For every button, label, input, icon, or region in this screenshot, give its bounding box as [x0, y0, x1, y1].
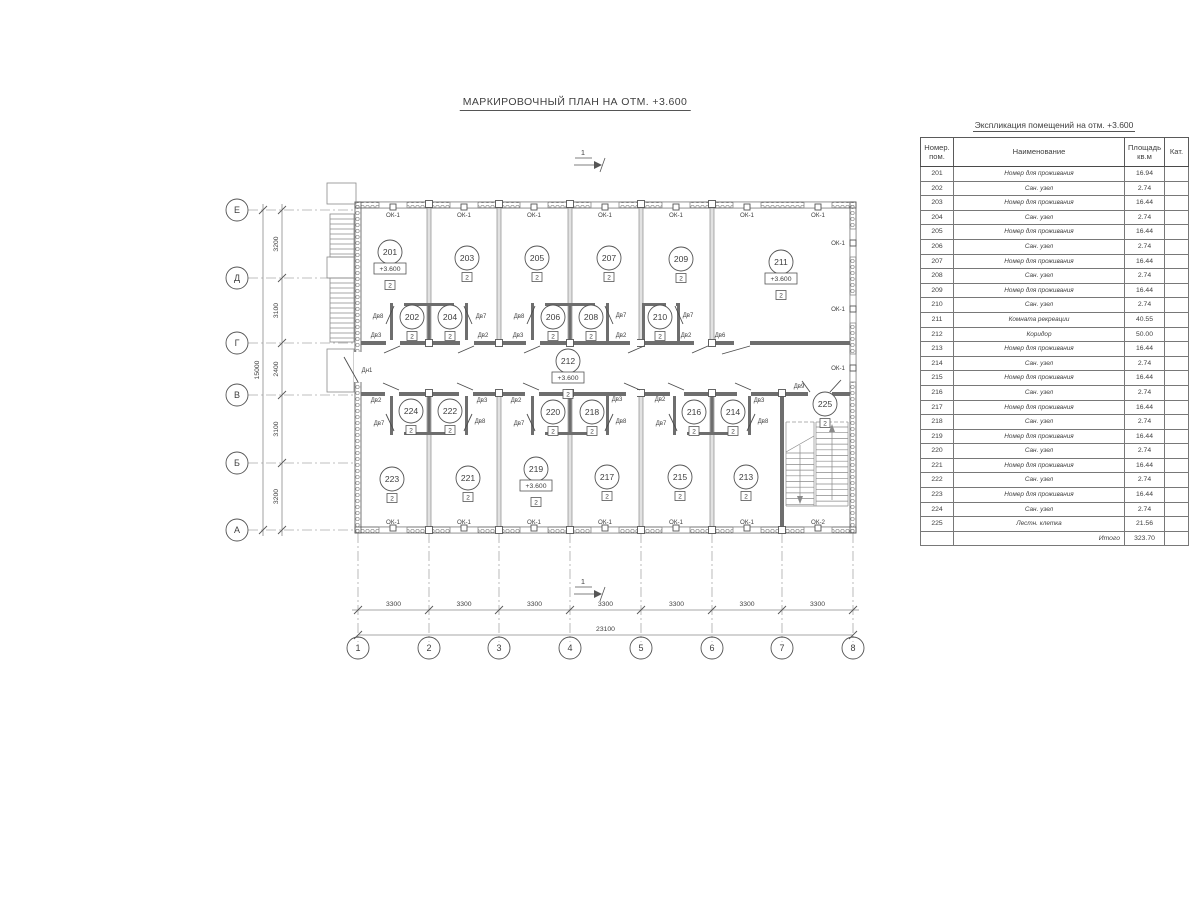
area-cell: 2.74: [1125, 444, 1165, 459]
external-stair: [327, 183, 356, 392]
category-mark: 2: [590, 429, 594, 436]
area-cell: 16.44: [1125, 400, 1165, 415]
stair-landing: [327, 257, 354, 278]
bathroom-wall: [531, 396, 534, 435]
category-cell: [1165, 342, 1189, 357]
window-frame-mark: [850, 365, 856, 371]
room-number-cell: 209: [921, 283, 954, 298]
pilaster-mark: [709, 527, 716, 534]
room-number: 204: [443, 312, 458, 322]
room-name-cell: Номер для проживания: [954, 225, 1125, 240]
axis-bubble-label: 8: [850, 643, 855, 653]
dim-label: 3300: [739, 601, 754, 608]
window-label: ОК-1: [598, 519, 612, 526]
table-row: 211Комната рекреации40.55: [921, 312, 1189, 327]
room-name-cell: Номер для проживания: [954, 196, 1125, 211]
door-label: Дв2: [655, 397, 666, 403]
door-opening: [734, 340, 750, 346]
corridor-wall-top: [361, 341, 850, 345]
pilaster-mark: [426, 340, 433, 347]
table-row: 223Номер для проживания16.44: [921, 488, 1189, 503]
axis-bubble-label: 5: [638, 643, 643, 653]
area-cell: 16.44: [1125, 254, 1165, 269]
room-number: 222: [443, 406, 458, 416]
table-row: 206Сан. узел2.74: [921, 239, 1189, 254]
dim-label: 3100: [273, 421, 280, 436]
table-row: 214Сан. узел2.74: [921, 356, 1189, 371]
stairwell-stairs: [786, 422, 848, 506]
category-cell: [1165, 196, 1189, 211]
area-cell: 2.74: [1125, 473, 1165, 488]
axis-bubble-label: В: [234, 390, 240, 400]
category-mark: 2: [535, 275, 539, 282]
category-cell: [1165, 385, 1189, 400]
dim-total-label: 15000: [254, 360, 261, 379]
stair-down-arrowhead: [797, 496, 803, 504]
category-cell: [1165, 283, 1189, 298]
room-number: 223: [385, 474, 400, 484]
door-opening: [666, 302, 676, 307]
category-cell: [1165, 356, 1189, 371]
door-opening: [454, 431, 465, 436]
room-name-cell: Сан. узел: [954, 502, 1125, 517]
category-mark: 2: [410, 334, 414, 341]
room-name-cell: Номер для проживания: [954, 283, 1125, 298]
table-row: 221Номер для проживания16.44: [921, 458, 1189, 473]
section-mark-top: 1: [574, 148, 605, 172]
table-header: Номер. пом.НаименованиеПлощадь кв.мКат.: [921, 138, 1189, 167]
category-cell: [1165, 415, 1189, 430]
bathroom-wall: [748, 396, 751, 435]
door-leaf: [624, 383, 640, 390]
bathroom-wall: [642, 303, 645, 342]
door-opening: [626, 390, 640, 396]
category-cell: [1165, 210, 1189, 225]
category-mark: 2: [551, 334, 555, 341]
category-cell: [1165, 298, 1189, 313]
room-name-cell: Сан. узел: [954, 269, 1125, 284]
room-number-cell: 221: [921, 458, 954, 473]
room-number-cell: 204: [921, 210, 954, 225]
area-cell: 2.74: [1125, 356, 1165, 371]
dim-label: 3300: [527, 601, 542, 608]
category-cell: [1165, 167, 1189, 182]
dim-label: 3100: [273, 303, 280, 318]
table-row: 202Сан. узел2.74: [921, 181, 1189, 196]
table-title: Экспликация помещений на отм. +3.600: [920, 120, 1188, 130]
category-cell: [1165, 502, 1189, 517]
table-row: 212Коридор50.00: [921, 327, 1189, 342]
table-total-row: Итого323.70: [921, 531, 1189, 546]
area-cell: 2.74: [1125, 385, 1165, 400]
door-label: Дн1: [362, 368, 373, 374]
axis-bubble-label: 2: [426, 643, 431, 653]
pilaster-mark: [709, 201, 716, 208]
table-row: 213Номер для проживания16.44: [921, 342, 1189, 357]
door-opening: [737, 431, 748, 436]
room-number: 213: [739, 472, 754, 482]
room-number-cell: 216: [921, 385, 954, 400]
area-cell: 2.74: [1125, 181, 1165, 196]
room-name-cell: Сан. узел: [954, 415, 1125, 430]
category-cell: [1165, 517, 1189, 532]
table-row: 225Лестн. клетка21.56: [921, 517, 1189, 532]
empty-cell: [1165, 531, 1189, 546]
stair-landing: [327, 183, 356, 204]
room-number-cell: 206: [921, 239, 954, 254]
room-name-cell: Номер для проживания: [954, 488, 1125, 503]
window-label: ОК-1: [457, 519, 471, 526]
category-cell: [1165, 269, 1189, 284]
window-label: ОК-1: [527, 519, 541, 526]
room-number: 217: [600, 472, 615, 482]
category-mark: 2: [679, 276, 683, 283]
window-label: ОК-1: [457, 212, 471, 219]
room-name-cell: Номер для проживания: [954, 429, 1125, 444]
level-mark: +3.600: [526, 483, 547, 490]
door-label: Дв3: [477, 398, 488, 404]
table-row: 218Сан. узел2.74: [921, 415, 1189, 430]
door-opening: [525, 390, 539, 396]
category-mark: 2: [607, 275, 611, 282]
door-leaf: [668, 383, 684, 390]
total-area-cell: 323.70: [1125, 531, 1165, 546]
section-mark-bottom: 1: [574, 577, 605, 601]
column-header: Площадь кв.м: [1125, 138, 1165, 167]
room-number-cell: 210: [921, 298, 954, 313]
room-number-cell: 201: [921, 167, 954, 182]
window-label: ОК-1: [386, 212, 400, 219]
area-cell: 2.74: [1125, 415, 1165, 430]
door-opening: [393, 302, 404, 307]
bathroom-wall: [428, 396, 431, 435]
door-label: Дв2: [478, 333, 489, 339]
pilaster-mark: [426, 390, 433, 397]
axis-bubble-label: 4: [567, 643, 572, 653]
window-label: ОК-2: [811, 519, 825, 526]
axis-bubble-label: А: [234, 525, 240, 535]
axis-bubble-label: Г: [235, 338, 240, 348]
window-frame-mark: [461, 204, 467, 210]
window-frame-mark: [602, 204, 608, 210]
room-number: 216: [687, 407, 702, 417]
area-cell: 16.94: [1125, 167, 1165, 182]
category-mark: 2: [678, 494, 682, 501]
stair-flight: [330, 278, 354, 342]
door-leaf: [722, 346, 750, 354]
door-label: Дв7: [616, 313, 627, 319]
door-label: Дв7: [514, 421, 525, 427]
category-cell: [1165, 458, 1189, 473]
category-cell: [1165, 181, 1189, 196]
area-cell: 16.44: [1125, 488, 1165, 503]
empty-cell: [921, 531, 954, 546]
bathroom-wall: [711, 396, 714, 435]
room-number-cell: 224: [921, 502, 954, 517]
pilaster-mark: [567, 527, 574, 534]
category-cell: [1165, 444, 1189, 459]
window-frame-mark: [850, 240, 856, 246]
room-number-cell: 218: [921, 415, 954, 430]
table-row: 224Сан. узел2.74: [921, 502, 1189, 517]
door-label: Дв6: [715, 333, 726, 339]
area-cell: 16.44: [1125, 458, 1165, 473]
door-leaf: [524, 346, 540, 353]
bathroom-wall: [428, 303, 431, 342]
section-arrow-head: [594, 161, 602, 169]
room-number-cell: 205: [921, 225, 954, 240]
door-label: Дв2: [371, 398, 382, 404]
category-mark: 2: [658, 334, 662, 341]
room-number: 220: [546, 407, 561, 417]
door-label: Дв2: [511, 398, 522, 404]
table-row: 209Номер для проживания16.44: [921, 283, 1189, 298]
category-cell: [1165, 254, 1189, 269]
category-mark: 2: [466, 495, 470, 502]
room-number: 209: [674, 254, 689, 264]
door-label: Дв3: [371, 333, 382, 339]
area-cell: 16.44: [1125, 283, 1165, 298]
pilaster-mark: [496, 201, 503, 208]
door-opening: [737, 390, 751, 396]
dim-label: 2400: [273, 361, 280, 376]
category-mark: 2: [388, 283, 392, 290]
table-row: 201Номер для проживания16.94: [921, 167, 1189, 182]
entry-balcony: [327, 349, 354, 392]
door-label: Дв7: [476, 314, 487, 320]
section-arrow-head: [594, 590, 602, 598]
window-label: ОК-1: [740, 519, 754, 526]
room-name-cell: Сан. узел: [954, 356, 1125, 371]
area-cell: 2.74: [1125, 298, 1165, 313]
door-leaf: [692, 346, 708, 353]
door-leaf: [384, 346, 400, 353]
axis-bubble-label: 7: [779, 643, 784, 653]
room-name-cell: Сан. узел: [954, 444, 1125, 459]
partition: [497, 396, 501, 527]
stair-flight: [330, 214, 354, 257]
door-label: Дв8: [475, 419, 486, 425]
window-frame-mark: [850, 306, 856, 312]
door-opening: [460, 340, 474, 346]
door-label: Дв9: [794, 384, 805, 390]
dim-label: 3300: [810, 601, 825, 608]
room-number: 212: [561, 356, 576, 366]
category-cell: [1165, 371, 1189, 386]
door-leaf: [457, 383, 473, 390]
door-label: Дв3: [513, 333, 524, 339]
window-frame-mark: [531, 204, 537, 210]
area-cell: 16.44: [1125, 371, 1165, 386]
dim-label: 3200: [273, 489, 280, 504]
window-label: ОК-1: [527, 212, 541, 219]
pilaster-mark: [638, 527, 645, 534]
room-name-cell: Номер для проживания: [954, 458, 1125, 473]
dim-label: 3300: [598, 601, 613, 608]
door-opening: [534, 302, 545, 307]
door-opening: [459, 390, 473, 396]
room-number-cell: 220: [921, 444, 954, 459]
room-number: 225: [818, 399, 833, 409]
column-header: Кат.: [1165, 138, 1189, 167]
category-cell: [1165, 400, 1189, 415]
window-label: ОК-1: [669, 212, 683, 219]
stairwell-wall: [780, 396, 784, 527]
room-number-cell: 223: [921, 488, 954, 503]
door-opening: [385, 390, 399, 396]
pilaster-mark: [638, 201, 645, 208]
door-label: Дв2: [616, 333, 627, 339]
category-mark: 2: [692, 429, 696, 436]
window-label: ОК-1: [386, 519, 400, 526]
table-row: 222Сан. узел2.74: [921, 473, 1189, 488]
level-mark: +3.600: [558, 375, 579, 382]
dim-label: 3300: [456, 601, 471, 608]
room-number-cell: 212: [921, 327, 954, 342]
room-number: 221: [461, 473, 476, 483]
area-cell: 21.56: [1125, 517, 1165, 532]
room-number: 208: [584, 312, 599, 322]
pilaster-mark: [567, 201, 574, 208]
room-name-cell: Сан. узел: [954, 473, 1125, 488]
pilaster-mark: [709, 390, 716, 397]
room-number-cell: 225: [921, 517, 954, 532]
rooms-table: Номер. пом.НаименованиеПлощадь кв.мКат. …: [920, 137, 1189, 546]
door-label: Дв8: [514, 314, 525, 320]
table-header-row: Номер. пом.НаименованиеПлощадь кв.мКат.: [921, 138, 1189, 167]
door-leaf: [523, 383, 539, 390]
room-number: 218: [585, 407, 600, 417]
room-number: 205: [530, 253, 545, 263]
section-mark-label: 1: [581, 148, 585, 157]
door-label: Дв7: [374, 421, 385, 427]
table-row: 217Номер для проживания16.44: [921, 400, 1189, 415]
room-number-cell: 214: [921, 356, 954, 371]
pilaster-mark: [567, 340, 574, 347]
pilaster-mark: [496, 340, 503, 347]
section-mark-label: 1: [581, 577, 585, 586]
room-number-cell: 217: [921, 400, 954, 415]
room-number: 203: [460, 253, 475, 263]
axis-bubble-label: 3: [496, 643, 501, 653]
room-number: 214: [726, 407, 741, 417]
table-body: 201Номер для проживания16.94202Сан. узел…: [921, 167, 1189, 546]
door-label: Дв2: [681, 333, 692, 339]
partition: [497, 208, 501, 341]
room-name-cell: Лестн. клетка: [954, 517, 1125, 532]
room-name-cell: Комната рекреации: [954, 312, 1125, 327]
room-number: 201: [383, 247, 398, 257]
category-mark: 2: [744, 494, 748, 501]
dim-label: 3300: [669, 601, 684, 608]
category-mark: 2: [448, 334, 452, 341]
bathroom-wall: [673, 396, 676, 435]
area-cell: 16.44: [1125, 429, 1165, 444]
category-mark: 2: [409, 428, 413, 435]
table-row: 210Сан. узел2.74: [921, 298, 1189, 313]
pilaster-mark: [426, 201, 433, 208]
table-row: 215Номер для проживания16.44: [921, 371, 1189, 386]
drawing-sheet: МАРКИРОВОЧНЫЙ ПЛАН НА ОТМ. +3.600 ЕДГВБА…: [0, 0, 1200, 900]
area-cell: 2.74: [1125, 239, 1165, 254]
category-cell: [1165, 239, 1189, 254]
door-opening: [393, 431, 404, 436]
category-mark: 2: [589, 334, 593, 341]
room-name-cell: Сан. узел: [954, 385, 1125, 400]
room-number-cell: 207: [921, 254, 954, 269]
dim-label: 3300: [386, 601, 401, 608]
table-row: 208Сан. узел2.74: [921, 269, 1189, 284]
room-name-cell: Номер для проживания: [954, 371, 1125, 386]
room-labels: 201+3.6002202220322042205220622072208220…: [374, 240, 837, 507]
bathroom-wall: [569, 303, 572, 342]
bathroom-wall: [677, 303, 680, 342]
room-number: 224: [404, 406, 419, 416]
pilaster-mark: [496, 527, 503, 534]
pilaster-mark: [779, 390, 786, 397]
window-label: ОК-1: [831, 365, 845, 372]
axis-bubble-label: Д: [234, 273, 240, 283]
table-row: 205Номер для проживания16.44: [921, 225, 1189, 240]
explication-table: Экспликация помещений на отм. +3.600 Ном…: [920, 120, 1188, 546]
category-cell: [1165, 327, 1189, 342]
room-number-cell: 203: [921, 196, 954, 211]
door-opening: [694, 340, 708, 346]
column-header: Наименование: [954, 138, 1125, 167]
category-mark: 2: [448, 428, 452, 435]
category-mark: 2: [823, 421, 827, 428]
door-opening: [676, 431, 687, 436]
axis-bubble-label: Е: [234, 205, 240, 215]
room-name-cell: Номер для проживания: [954, 254, 1125, 269]
window-label: ОК-1: [811, 212, 825, 219]
room-number-cell: 213: [921, 342, 954, 357]
area-cell: 16.44: [1125, 342, 1165, 357]
window-label: ОК-1: [740, 212, 754, 219]
bathroom-wall: [390, 396, 393, 435]
bathroom-wall: [606, 396, 609, 435]
room-number-cell: 215: [921, 371, 954, 386]
room-number: 207: [602, 253, 617, 263]
room-number: 206: [546, 312, 561, 322]
table-row: 220Сан. узел2.74: [921, 444, 1189, 459]
room-number-cell: 219: [921, 429, 954, 444]
room-name-cell: Сан. узел: [954, 181, 1125, 196]
door-leaf: [383, 383, 399, 390]
table-row: 207Номер для проживания16.44: [921, 254, 1189, 269]
category-cell: [1165, 473, 1189, 488]
level-mark: +3.600: [771, 276, 792, 283]
door-leaf: [830, 380, 841, 392]
area-cell: 2.74: [1125, 502, 1165, 517]
partition: [639, 396, 643, 527]
window-frame-mark: [744, 204, 750, 210]
area-cell: 40.55: [1125, 312, 1165, 327]
room-name-cell: Коридор: [954, 327, 1125, 342]
corridor-wall-bottom: [361, 392, 850, 396]
room-name-cell: Номер для проживания: [954, 167, 1125, 182]
category-cell: [1165, 429, 1189, 444]
room-number: 219: [529, 464, 544, 474]
category-mark: 2: [465, 275, 469, 282]
area-cell: 50.00: [1125, 327, 1165, 342]
pilaster-mark: [426, 527, 433, 534]
room-name-cell: Сан. узел: [954, 298, 1125, 313]
dim-total-label: 23100: [596, 626, 615, 633]
area-cell: 16.44: [1125, 225, 1165, 240]
room-number: 215: [673, 472, 688, 482]
pilaster-mark: [779, 527, 786, 534]
